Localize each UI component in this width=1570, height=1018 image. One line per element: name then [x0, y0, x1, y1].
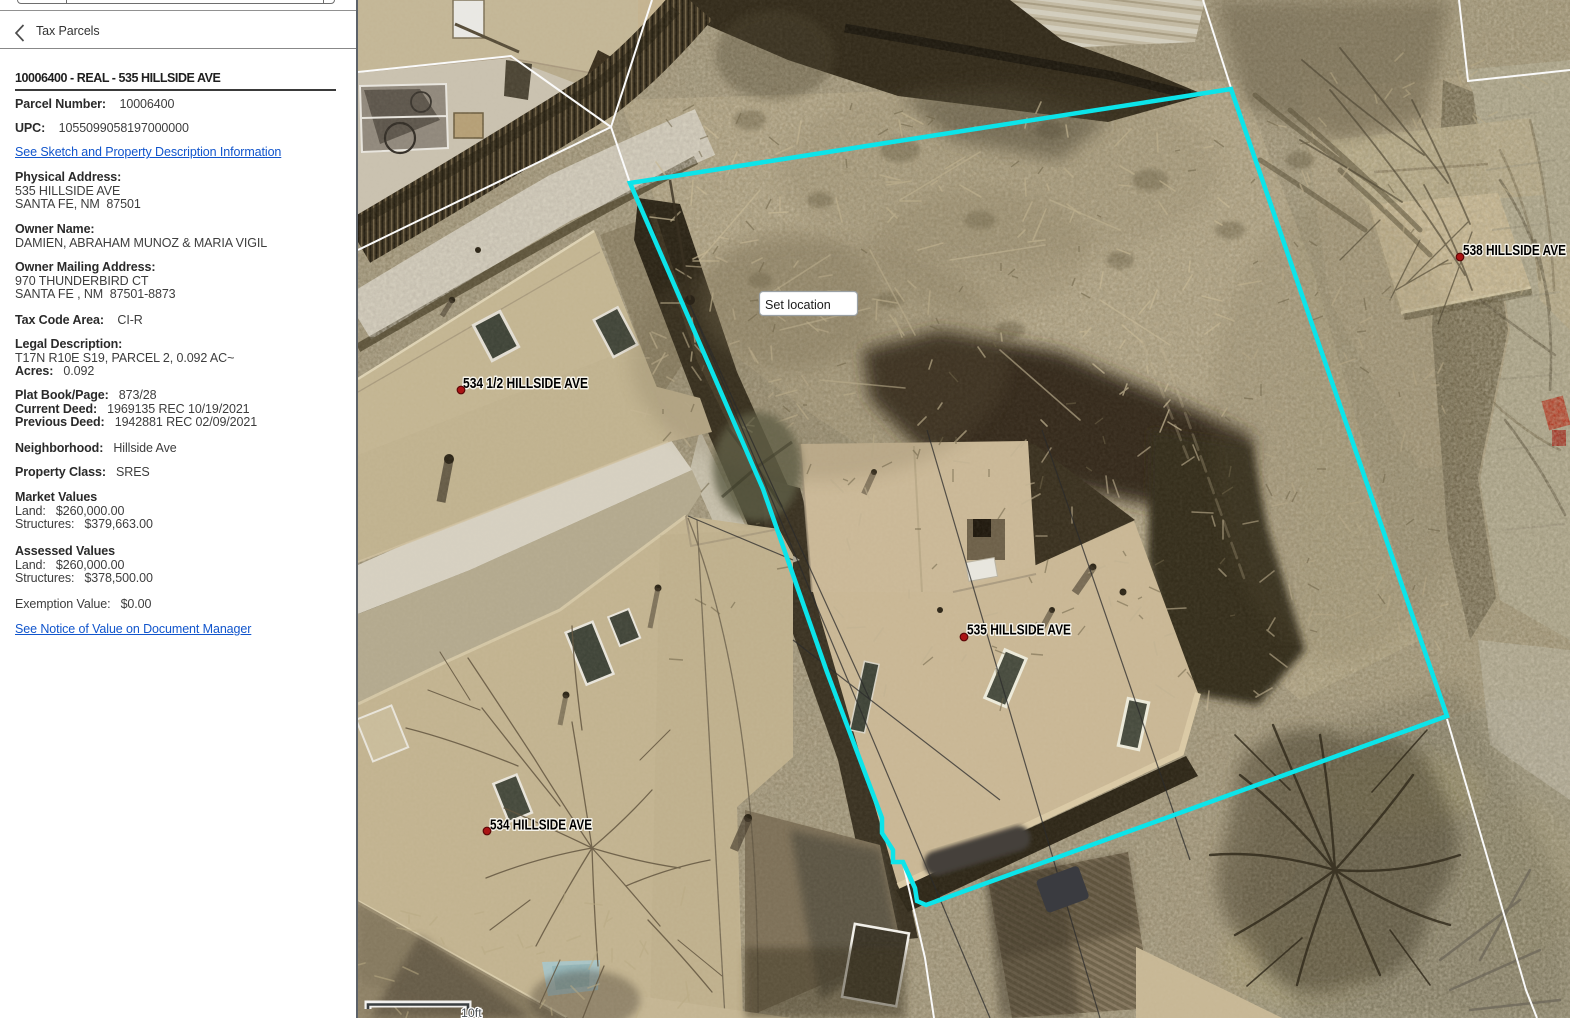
svg-text:534 1/2 HILLSIDE AVE: 534 1/2 HILLSIDE AVE: [463, 376, 588, 392]
svg-text:Set location: Set location: [765, 298, 831, 312]
svg-text:535 HILLSIDE AVE: 535 HILLSIDE AVE: [967, 623, 1071, 639]
svg-text:534 HILLSIDE AVE: 534 HILLSIDE AVE: [490, 818, 592, 834]
svg-text:538 HILLSIDE AVE: 538 HILLSIDE AVE: [1463, 243, 1566, 259]
svg-text:10ft: 10ft: [461, 1006, 482, 1018]
